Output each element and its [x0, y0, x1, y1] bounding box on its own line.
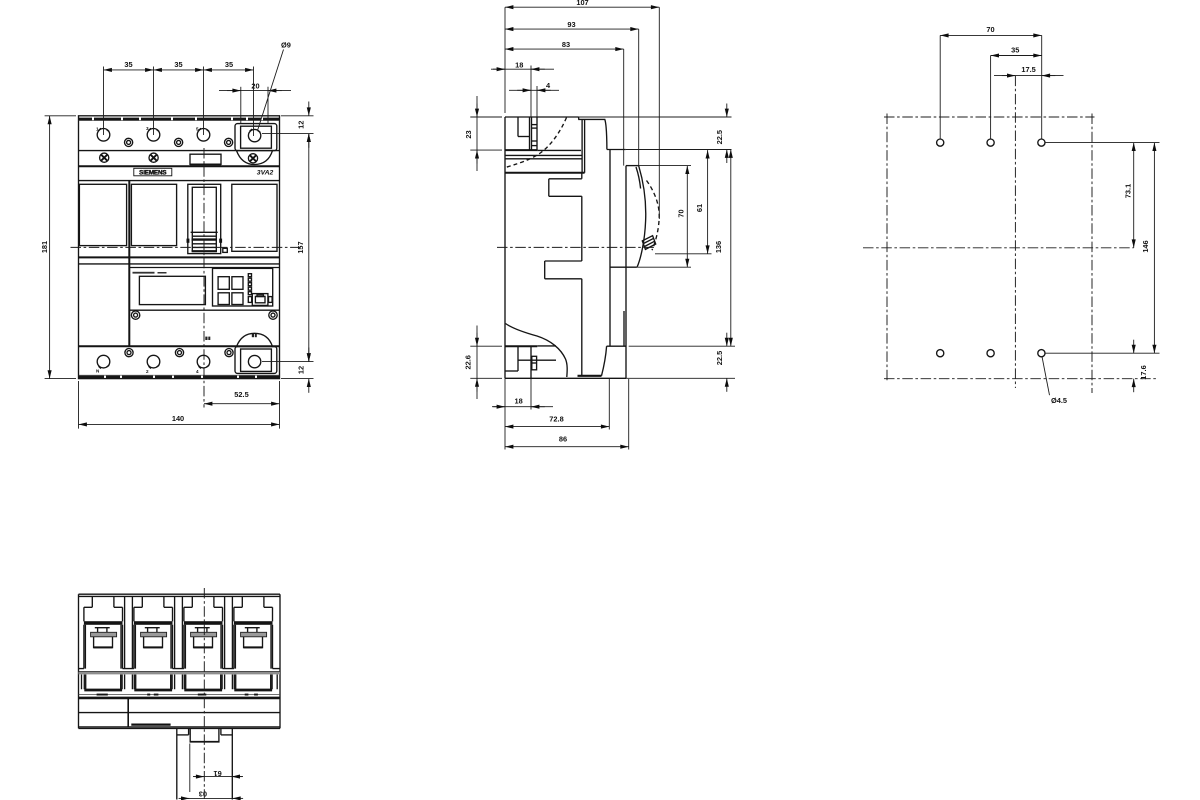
svg-text:17.5: 17.5: [1021, 65, 1035, 74]
svg-text:93: 93: [567, 20, 575, 29]
svg-text:03: 03: [199, 790, 207, 799]
svg-text:107: 107: [576, 0, 588, 7]
svg-text:5: 5: [196, 127, 199, 132]
svg-text:70: 70: [677, 209, 686, 217]
svg-text:52.5: 52.5: [234, 390, 248, 399]
svg-text:61: 61: [695, 204, 704, 212]
svg-text:35: 35: [225, 60, 233, 69]
svg-text:18: 18: [515, 60, 523, 69]
svg-text:12: 12: [297, 121, 306, 129]
svg-text:35: 35: [174, 60, 182, 69]
svg-text:22.5: 22.5: [715, 351, 724, 365]
svg-text:23: 23: [464, 130, 473, 138]
svg-text:86: 86: [559, 434, 567, 443]
svg-text:35: 35: [124, 60, 132, 69]
svg-text:22.6: 22.6: [463, 355, 472, 369]
svg-text:Ø4.5: Ø4.5: [1051, 396, 1067, 405]
svg-text:22.5: 22.5: [715, 130, 724, 144]
svg-text:136: 136: [714, 241, 723, 253]
svg-text:18: 18: [514, 397, 522, 406]
svg-text:3VA2: 3VA2: [257, 170, 274, 177]
svg-text:2: 2: [146, 369, 149, 374]
svg-text:181: 181: [40, 241, 49, 253]
svg-text:20: 20: [251, 82, 259, 91]
svg-text:Ø9: Ø9: [281, 41, 291, 50]
svg-text:1: 1: [96, 127, 99, 132]
svg-text:73.1: 73.1: [1124, 184, 1133, 198]
svg-text:12: 12: [297, 366, 306, 374]
svg-text:61: 61: [213, 769, 221, 778]
svg-text:157: 157: [296, 241, 305, 253]
svg-text:SIEMENS: SIEMENS: [139, 170, 166, 177]
svg-text:35: 35: [1011, 45, 1019, 54]
svg-text:70: 70: [986, 25, 994, 34]
svg-text:140: 140: [172, 414, 184, 423]
svg-text:146: 146: [1141, 240, 1150, 252]
svg-text:83: 83: [562, 40, 570, 49]
svg-text:4: 4: [196, 369, 199, 374]
svg-text:3: 3: [146, 126, 149, 131]
svg-text:17.6: 17.6: [1139, 365, 1148, 379]
svg-text:72.8: 72.8: [549, 414, 563, 423]
